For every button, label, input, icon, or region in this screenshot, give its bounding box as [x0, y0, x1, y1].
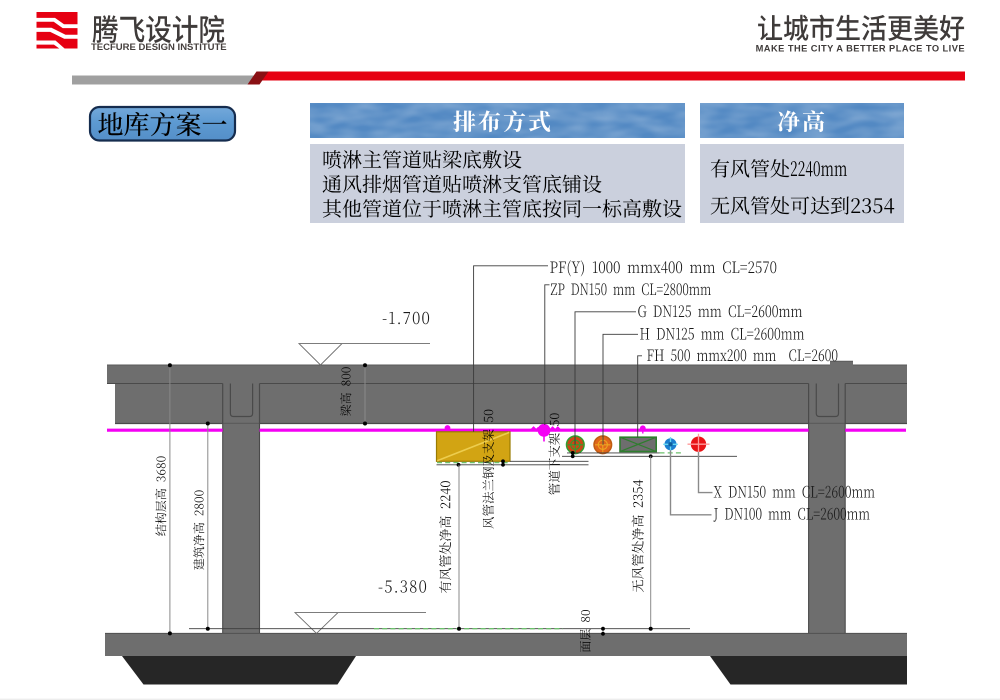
svg-text:TECFURE DESIGN INSTITUTE: TECFURE DESIGN INSTITUTE: [91, 42, 227, 53]
svg-text:MAKE THE CITY A BETTER PLACE T: MAKE THE CITY A BETTER PLACE TO LIVE: [756, 44, 965, 54]
